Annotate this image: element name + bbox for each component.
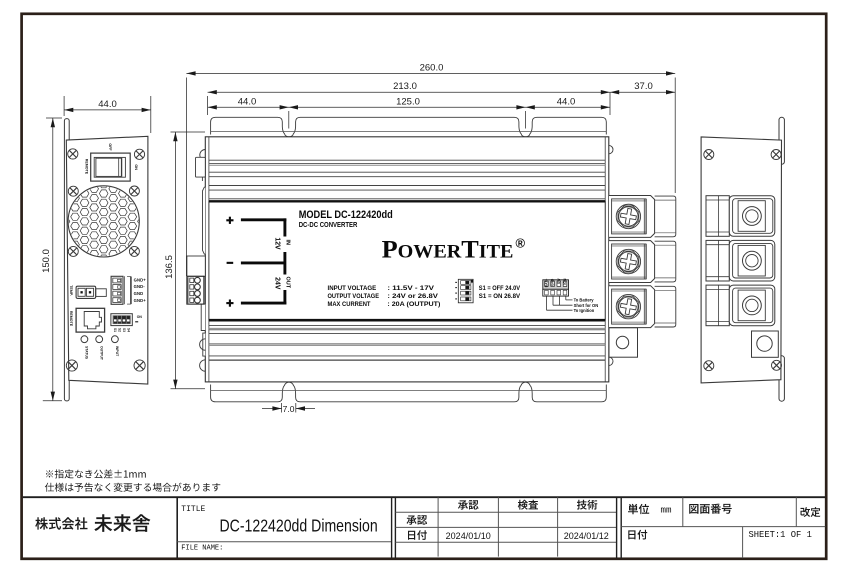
svg-text:DC-122420dd Dimension: DC-122420dd Dimension xyxy=(220,516,378,536)
svg-text:136.5: 136.5 xyxy=(164,255,175,279)
svg-text:: 20A (OUTPUT): : 20A (OUTPUT) xyxy=(387,301,440,308)
svg-text:®: ® xyxy=(516,236,526,251)
svg-text:S1 = ON 26.8V: S1 = ON 26.8V xyxy=(479,293,521,300)
svg-text:INPUT: INPUT xyxy=(115,346,119,357)
svg-text:S1: S1 xyxy=(113,328,117,332)
svg-text:ON: ON xyxy=(137,315,143,319)
svg-text:44.0: 44.0 xyxy=(238,96,257,107)
svg-text:SHEET:1 OF 1: SHEET:1 OF 1 xyxy=(749,530,812,540)
svg-text:POWERTITE: POWERTITE xyxy=(382,237,514,264)
svg-text:S2: S2 xyxy=(118,328,122,332)
svg-text:S3: S3 xyxy=(122,328,126,332)
svg-text:260.0: 260.0 xyxy=(420,62,444,73)
svg-text:TITLE: TITLE xyxy=(181,505,205,514)
svg-text:2024/01/12: 2024/01/12 xyxy=(564,531,609,541)
svg-text:2024/01/10: 2024/01/10 xyxy=(446,531,491,541)
svg-text:GND: GND xyxy=(551,278,555,286)
svg-text:STATUS: STATUS xyxy=(85,346,89,360)
svg-text:37.0: 37.0 xyxy=(634,81,653,92)
svg-text:GND+: GND+ xyxy=(134,277,147,282)
svg-text:IGN: IGN xyxy=(563,278,567,285)
svg-text:OFF: OFF xyxy=(108,143,112,151)
svg-text:To Ignition: To Ignition xyxy=(574,308,595,313)
svg-text:MAX CURRENT: MAX CURRENT xyxy=(328,301,371,308)
svg-text:S1 = OFF 24.0V: S1 = OFF 24.0V xyxy=(479,285,521,292)
svg-text:IN: IN xyxy=(285,239,291,245)
svg-text:OUT: OUT xyxy=(285,276,291,288)
svg-text:DC-DC CONVERTER: DC-DC CONVERTER xyxy=(299,222,358,229)
svg-text:: 24V or 26.8V: : 24V or 26.8V xyxy=(387,293,438,300)
svg-text:7.0: 7.0 xyxy=(283,404,295,414)
svg-text:125.0: 125.0 xyxy=(396,96,420,107)
svg-text:REMOTE: REMOTE xyxy=(84,159,88,175)
svg-text:mm: mm xyxy=(661,505,673,516)
svg-text:GND+: GND+ xyxy=(134,298,147,303)
svg-text:GND-: GND- xyxy=(134,284,146,289)
svg-text:150.0: 150.0 xyxy=(41,249,52,273)
svg-text:MODEL DC-122420dd: MODEL DC-122420dd xyxy=(299,209,393,221)
svg-text:44.0: 44.0 xyxy=(98,99,117,110)
svg-text:ON: ON xyxy=(134,164,138,170)
svg-text:OUTPUT VOLTAGE: OUTPUT VOLTAGE xyxy=(328,293,380,300)
svg-text:24V: 24V xyxy=(274,277,281,290)
svg-text:INPUT VOLTAGE: INPUT VOLTAGE xyxy=(328,285,377,292)
svg-text:12V: 12V xyxy=(274,237,281,250)
svg-text:BAT+: BAT+ xyxy=(544,279,548,288)
svg-text:S4: S4 xyxy=(126,328,130,332)
svg-text:FILE NAME:: FILE NAME: xyxy=(181,545,223,553)
svg-text:REMOTE: REMOTE xyxy=(69,311,73,327)
svg-text:44.0: 44.0 xyxy=(557,96,576,107)
svg-text:: 11.5V - 17V: : 11.5V - 17V xyxy=(387,285,434,292)
svg-text:TEMP.: TEMP. xyxy=(69,285,73,296)
svg-text:SW: SW xyxy=(557,278,561,284)
svg-text:213.0: 213.0 xyxy=(393,81,417,92)
svg-text:GND: GND xyxy=(134,291,144,296)
svg-text:OUTPUT: OUTPUT xyxy=(99,346,103,361)
